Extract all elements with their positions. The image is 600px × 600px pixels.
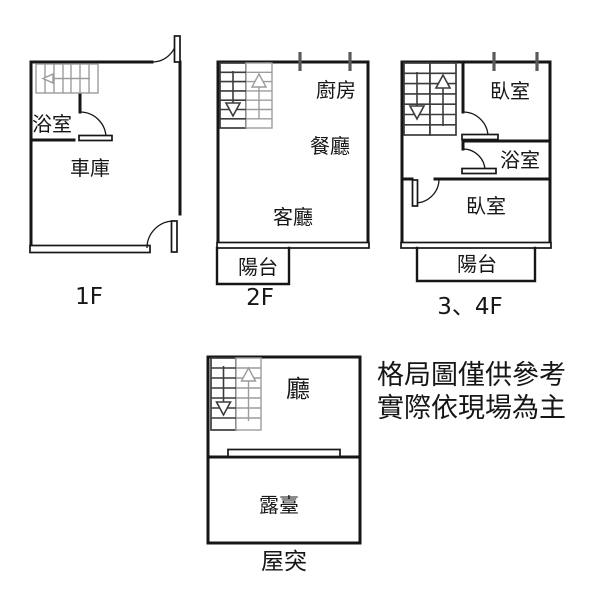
room-label-dining: 餐廳 (310, 134, 350, 158)
room-label-terrace: 露臺 (259, 493, 299, 517)
bedroom-lower-door (413, 179, 440, 206)
plan-34f: 臥室 浴室 臥室 陽台 3、4F (401, 52, 551, 320)
floor-label-34f: 3、4F (437, 294, 503, 320)
plan-1f: 浴室 車庫 1F (30, 36, 180, 310)
disclaimer: 格局圖僅供參考 實際依現場為主 (377, 360, 566, 424)
room-label-garage: 車庫 (70, 156, 110, 180)
room-label-balcony-2f: 陽台 (238, 255, 278, 279)
stairs-roof (211, 358, 261, 430)
floor-plan-drawing: 浴室 車庫 1F (0, 0, 600, 600)
disclaimer-line-1: 格局圖僅供參考 (377, 360, 566, 391)
plan-2f-bottom-wall (217, 243, 369, 249)
plan-34f-bottom-wall (401, 243, 551, 249)
room-label-living: 客廳 (273, 205, 313, 229)
stairs-34f (404, 63, 456, 135)
room-label-bedroom-upper: 臥室 (490, 79, 530, 103)
room-label-bathroom-1f: 浴室 (32, 112, 72, 136)
bathroom-door-34f (462, 149, 496, 174)
bedroom-upper-door (462, 112, 498, 140)
door-bottom-right (147, 221, 177, 252)
disclaimer-line-2: 實際依現場為主 (377, 393, 566, 424)
bathroom-door-1f (79, 112, 112, 141)
room-label-bathroom-34f: 浴室 (500, 148, 540, 172)
entry-door-top-right (152, 36, 180, 62)
floor-label-2f: 2F (246, 285, 274, 311)
floor-plan-page: 浴室 車庫 1F (0, 0, 600, 600)
room-label-bedroom-lower: 臥室 (466, 194, 506, 218)
floor-label-1f: 1F (75, 284, 103, 310)
room-label-balcony-34f: 陽台 (457, 252, 497, 276)
room-label-hall: 廳 (286, 375, 310, 403)
stairs-2f (220, 63, 272, 128)
plan-2f: 廚房 餐廳 客廳 陽台 2F (217, 52, 369, 311)
stairs-1f (36, 64, 98, 93)
garage-door (30, 246, 150, 253)
room-label-kitchen: 廚房 (316, 78, 356, 102)
floor-label-roof: 屋突 (261, 549, 307, 575)
terrace-sliding-door (228, 450, 340, 457)
plan-roof: 廳 露臺 屋突 (208, 357, 360, 575)
